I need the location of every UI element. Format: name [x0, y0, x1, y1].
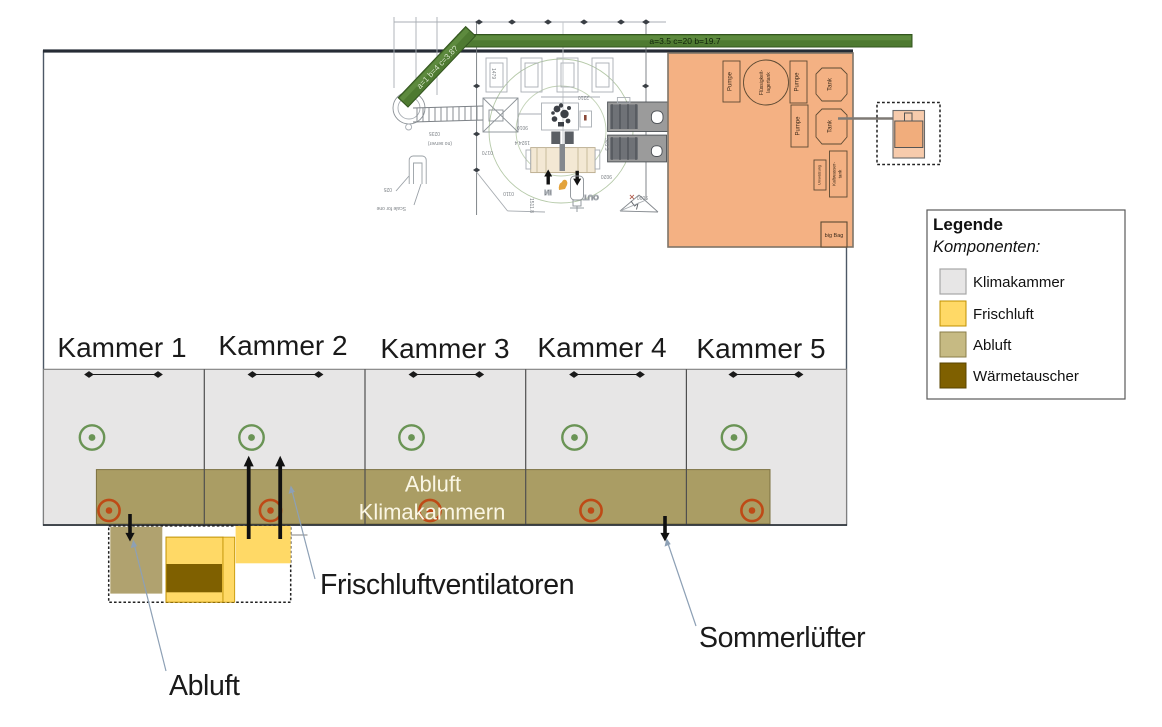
svg-text:Kammer 2: Kammer 2	[218, 330, 347, 361]
svg-text:a=3.5 c=20 b=19.7: a=3.5 c=20 b=19.7	[649, 36, 720, 46]
svg-text:Kammer 4: Kammer 4	[537, 332, 666, 363]
svg-text:big Bag: big Bag	[825, 233, 844, 239]
svg-text:025: 025	[383, 186, 392, 192]
svg-text:Frischluftventilatoren: Frischluftventilatoren	[320, 569, 574, 601]
svg-text:Pumpe: Pumpe	[728, 71, 734, 91]
svg-text:Kammer 3: Kammer 3	[380, 333, 509, 364]
svg-text:OUT: OUT	[583, 193, 599, 202]
svg-text:2210: 2210	[578, 94, 589, 100]
svg-text:Komponenten:: Komponenten:	[933, 238, 1040, 256]
svg-text:Umwälzung: Umwälzung	[818, 165, 822, 185]
svg-text:0235: 0235	[429, 130, 440, 136]
svg-text:Abluft: Abluft	[169, 670, 240, 702]
svg-text:Wärmetauscher: Wärmetauscher	[973, 368, 1079, 385]
svg-text:Kammer 1: Kammer 1	[57, 332, 186, 363]
svg-text:Tank: Tank	[828, 119, 834, 133]
svg-text:1479: 1479	[490, 68, 496, 79]
svg-text:Pumpe: Pumpe	[796, 116, 802, 136]
svg-text:9010: 9010	[517, 124, 528, 130]
svg-text:0110: 0110	[503, 190, 514, 196]
svg-text:Kammer 5: Kammer 5	[696, 333, 825, 364]
svg-text:Legende: Legende	[933, 215, 1003, 234]
svg-text:1511.8: 1511.8	[528, 198, 534, 213]
svg-text:(no server): (no server)	[427, 140, 452, 146]
svg-text:583.5: 583.5	[603, 138, 609, 151]
svg-text:1924.4: 1924.4	[514, 139, 530, 145]
svg-text:Kaltwasser-: Kaltwasser-	[832, 162, 837, 186]
svg-text:Frischluft: Frischluft	[973, 306, 1035, 323]
svg-text:Scale for one: Scale for one	[376, 205, 406, 211]
svg-text:Klimakammern: Klimakammern	[359, 500, 506, 525]
svg-text:tank: tank	[838, 169, 843, 178]
svg-text:9000: 9000	[637, 194, 648, 200]
svg-text:9020: 9020	[601, 173, 612, 179]
svg-text:Pumpe: Pumpe	[795, 72, 801, 92]
svg-text:Flüssigkeit-: Flüssigkeit-	[759, 70, 765, 96]
svg-text:Abluft: Abluft	[405, 472, 461, 497]
svg-text:0170: 0170	[482, 149, 493, 155]
svg-text:lagertank: lagertank	[766, 72, 772, 93]
svg-text:Sommerlüfter: Sommerlüfter	[699, 622, 866, 654]
svg-text:Abluft: Abluft	[973, 337, 1012, 354]
svg-text:IN: IN	[544, 188, 552, 197]
svg-text:Tank: Tank	[828, 77, 834, 91]
svg-text:Klimakammer: Klimakammer	[973, 274, 1065, 291]
